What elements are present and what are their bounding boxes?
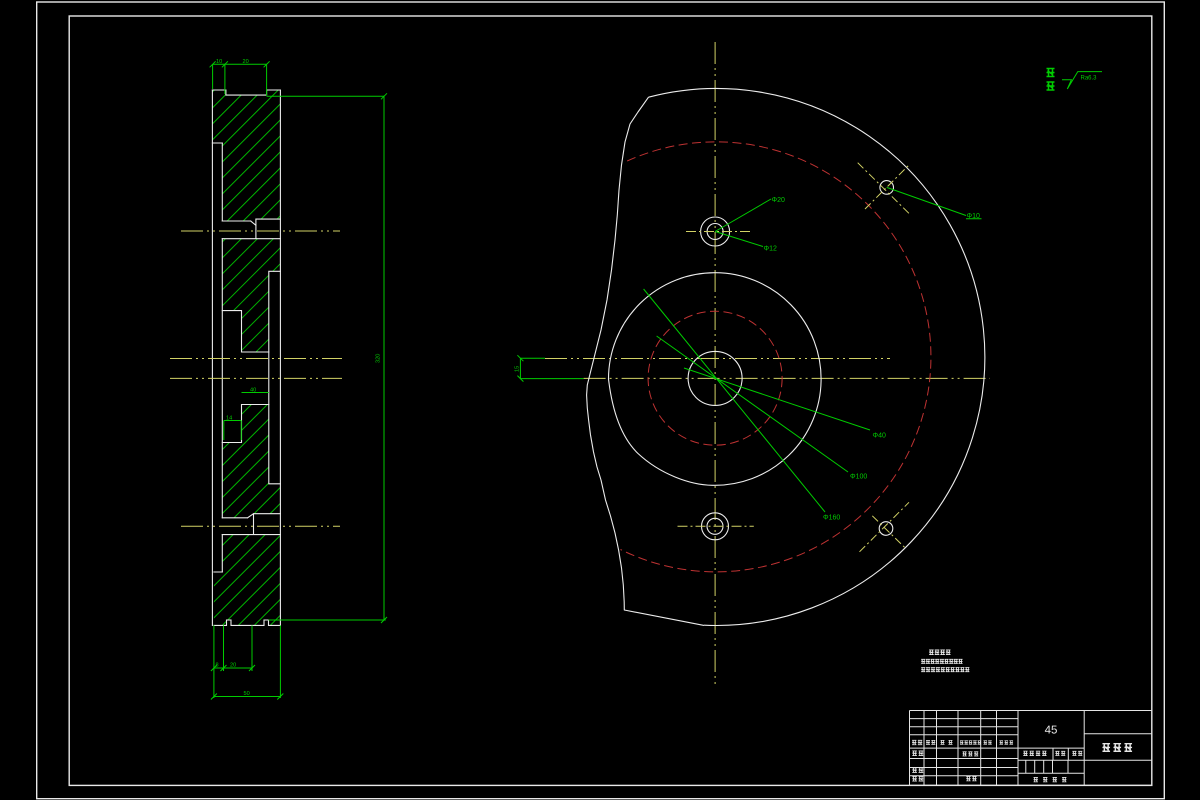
svg-text:Φ20: Φ20 [772, 197, 785, 204]
svg-text:Φ12: Φ12 [764, 246, 777, 253]
svg-text:50: 50 [244, 691, 250, 697]
svg-text:15: 15 [515, 366, 521, 372]
svg-text:320: 320 [376, 354, 382, 363]
svg-text:Φ10: Φ10 [967, 213, 980, 220]
svg-text:10: 10 [216, 59, 222, 65]
svg-text:Ra6.3: Ra6.3 [1081, 76, 1098, 82]
svg-text:8: 8 [216, 663, 219, 669]
svg-text:Φ100: Φ100 [850, 474, 867, 481]
svg-text:45: 45 [1045, 724, 1058, 736]
svg-text:20: 20 [230, 663, 236, 669]
svg-text:Φ160: Φ160 [823, 515, 840, 522]
svg-text:14: 14 [226, 415, 232, 421]
svg-text:Φ40: Φ40 [873, 433, 886, 440]
svg-text:20: 20 [243, 59, 249, 65]
svg-text:40: 40 [250, 387, 256, 393]
